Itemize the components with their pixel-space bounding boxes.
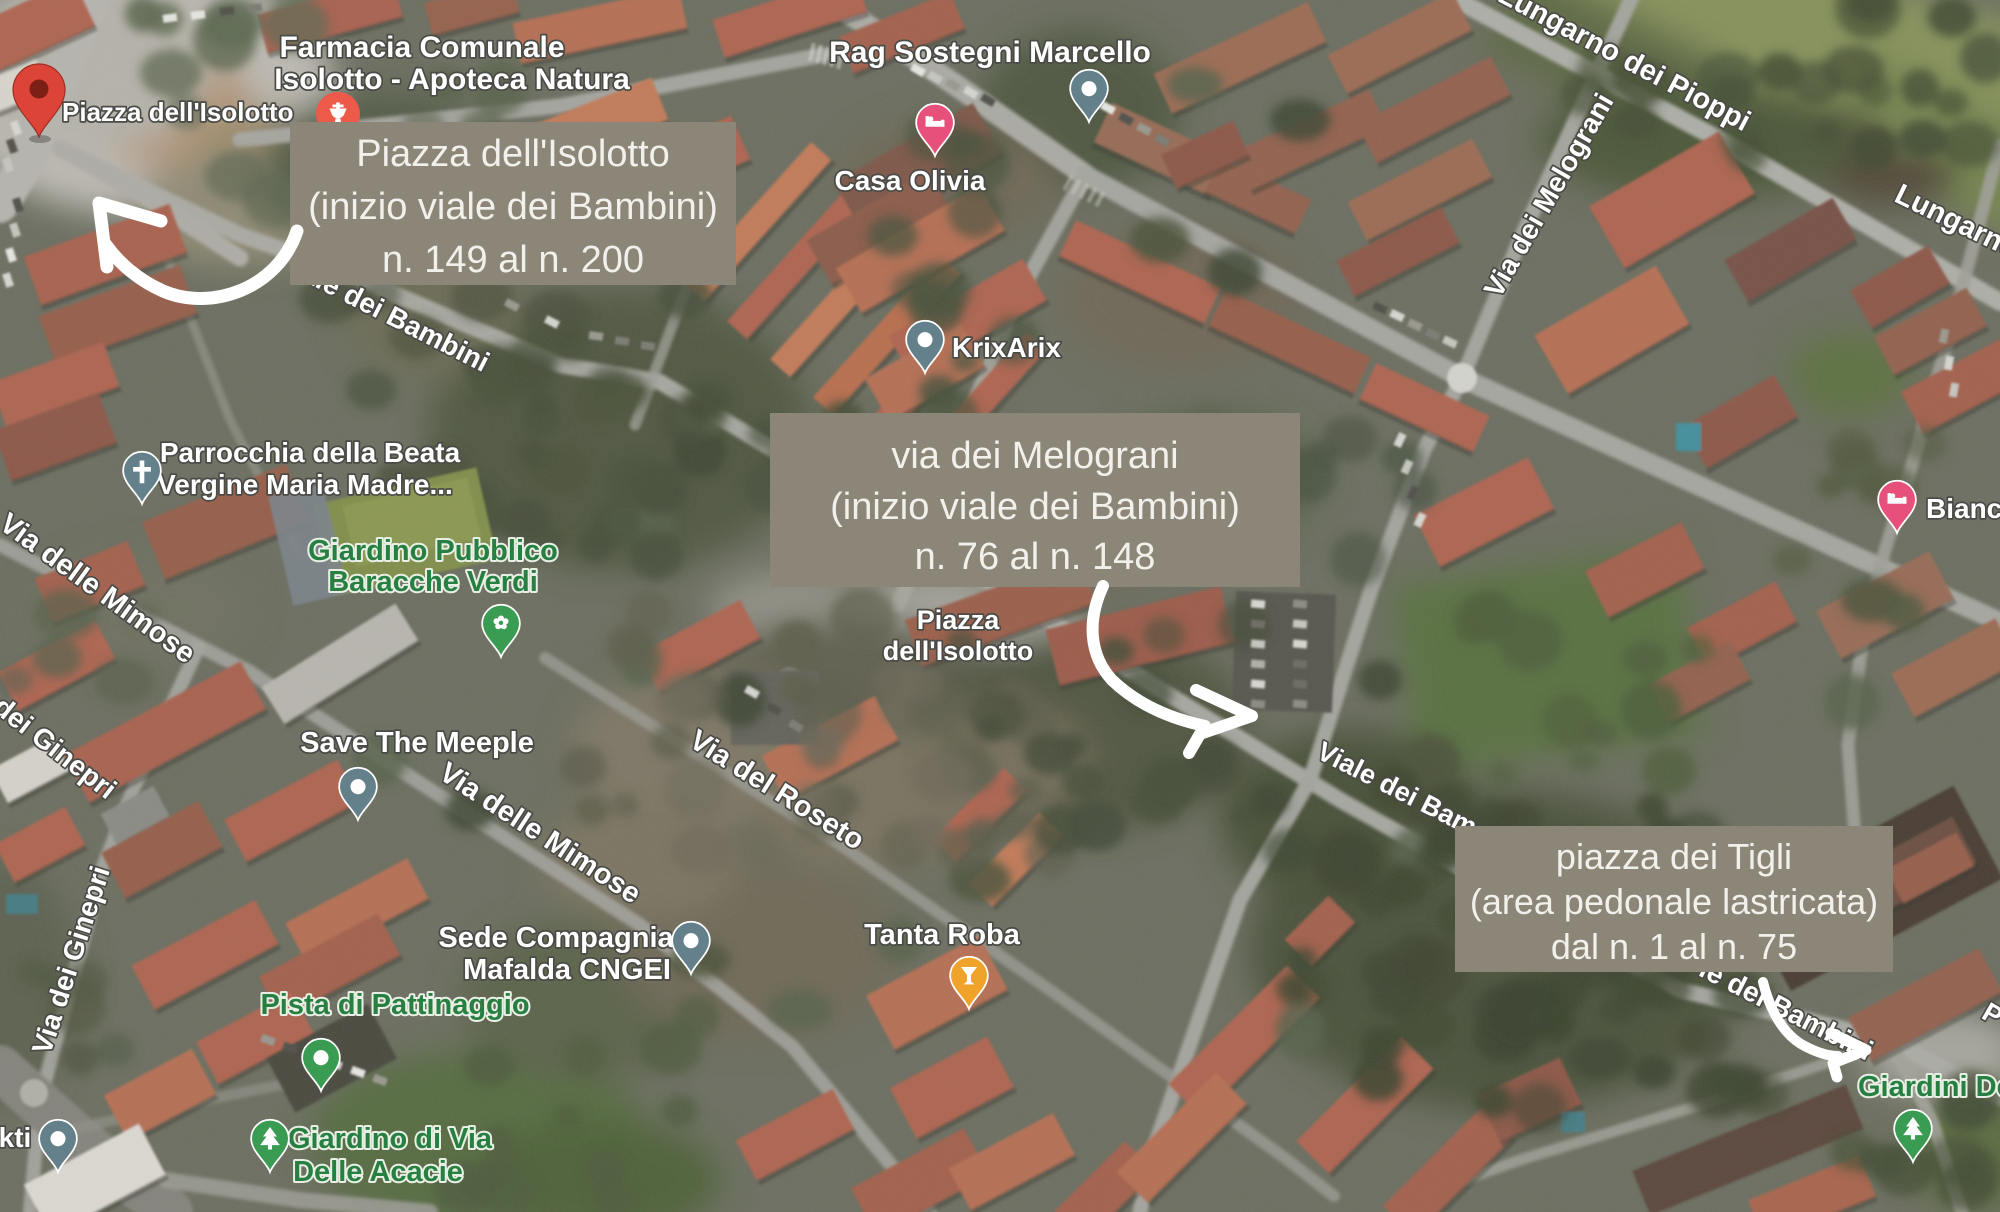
svg-text:(inizio viale dei Bambini): (inizio viale dei Bambini): [830, 486, 1240, 528]
svg-text:Pista di Pattinaggio: Pista di Pattinaggio: [260, 989, 529, 1021]
svg-text:KrixArix: KrixArix: [952, 332, 1061, 363]
svg-text:Giardini De: Giardini De: [1858, 1071, 2000, 1103]
svg-text:Isolotto - Apoteca Natura: Isolotto - Apoteca Natura: [274, 63, 630, 96]
svg-text:n. 76 al n. 148: n. 76 al n. 148: [915, 536, 1156, 578]
svg-text:via dei Melograni: via dei Melograni: [891, 435, 1178, 477]
svg-text:Piazza dell'Isolotto: Piazza dell'Isolotto: [62, 97, 294, 127]
svg-text:kti: kti: [0, 1122, 31, 1153]
svg-text:Giardino Pubblico: Giardino Pubblico: [308, 535, 558, 567]
svg-text:Farmacia Comunale: Farmacia Comunale: [279, 31, 564, 64]
svg-text:Giardino di Via: Giardino di Via: [288, 1123, 493, 1155]
svg-text:piazza dei Tigli: piazza dei Tigli: [1556, 836, 1792, 877]
svg-text:Save The Meeple: Save The Meeple: [300, 727, 534, 759]
svg-text:Baracche Verdi: Baracche Verdi: [328, 566, 538, 598]
svg-text:dal n. 1 al n. 75: dal n. 1 al n. 75: [1551, 926, 1797, 967]
svg-text:Casa Olivia: Casa Olivia: [835, 165, 986, 196]
svg-text:n. 149 al n. 200: n. 149 al n. 200: [382, 239, 644, 281]
svg-text:Tanta Roba: Tanta Roba: [864, 919, 1021, 951]
svg-text:Delle Acacie: Delle Acacie: [293, 1156, 463, 1188]
svg-text:Piazza dell'Isolotto: Piazza dell'Isolotto: [356, 133, 670, 175]
svg-text:Mafalda CNGEI: Mafalda CNGEI: [463, 954, 671, 986]
svg-text:(inizio viale dei Bambini): (inizio viale dei Bambini): [308, 186, 718, 228]
svg-text:Vergine Maria Madre...: Vergine Maria Madre...: [157, 469, 453, 500]
svg-text:Piazza: Piazza: [917, 605, 1001, 635]
svg-text:(area pedonale lastricata): (area pedonale lastricata): [1470, 881, 1878, 922]
svg-text:Rag Sostegni Marcello: Rag Sostegni Marcello: [829, 36, 1151, 69]
svg-text:Bianco: Bianco: [1926, 493, 2000, 524]
svg-text:Parrocchia della Beata: Parrocchia della Beata: [160, 437, 461, 468]
svg-text:Sede Compagnia: Sede Compagnia: [438, 922, 674, 954]
svg-text:dell'Isolotto: dell'Isolotto: [883, 636, 1033, 666]
